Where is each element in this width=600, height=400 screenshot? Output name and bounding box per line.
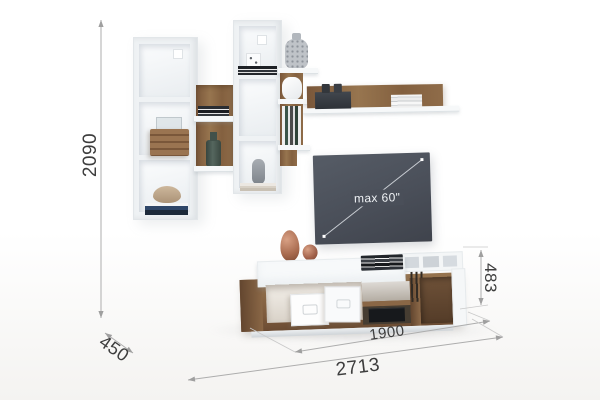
knob-decor	[322, 84, 330, 93]
knob-decor	[334, 84, 342, 93]
patterned-silver-vase	[285, 39, 308, 69]
tv-panel: max 60"	[313, 152, 432, 244]
stand-white-end-cap	[451, 268, 467, 326]
speaker-box-decor	[315, 92, 351, 110]
magazine-stack	[240, 183, 276, 191]
dimension-label-depth: 450	[95, 331, 133, 366]
tv-max-size-label: max 60"	[351, 189, 404, 206]
dimension-label-overall-height: 2090	[80, 133, 102, 177]
standing-books	[282, 106, 301, 145]
vase-neck	[292, 33, 301, 40]
stand-middle-compartment-upper	[362, 281, 411, 302]
book-stack-on-stand	[361, 254, 403, 270]
wall-shelf-connector	[196, 85, 233, 171]
white-book-stack	[391, 94, 422, 108]
cubby-slot	[423, 256, 439, 268]
box-label	[302, 304, 317, 315]
black-media-box	[369, 307, 405, 322]
white-storage-box	[324, 286, 360, 322]
cubby-slot	[403, 257, 419, 269]
dimension-label-stand-height: 483	[480, 263, 500, 293]
tv-stand	[237, 246, 472, 338]
basket-bowl	[153, 186, 181, 203]
white-storage-box	[290, 293, 329, 326]
box-label	[336, 299, 350, 308]
product-render-stage: max 60"	[0, 0, 600, 400]
shelf	[194, 166, 235, 172]
gray-vase	[252, 159, 265, 184]
white-pillow	[282, 77, 302, 100]
copper-vase-small	[302, 244, 318, 261]
book-stack	[145, 203, 188, 215]
shelf	[194, 116, 235, 122]
cabinet-center-cell-middle	[239, 79, 276, 136]
cabinet-latch	[257, 35, 267, 45]
wood-back-panel	[280, 150, 297, 166]
stand-right-compartment	[420, 277, 454, 324]
cabinet-latch	[173, 49, 183, 59]
cubby-slot	[443, 255, 457, 266]
book-stack	[198, 106, 229, 116]
glass-bottle	[206, 140, 221, 166]
wall-cabinet-center	[233, 20, 282, 194]
book-stack	[238, 66, 277, 75]
wooden-crate	[150, 129, 189, 156]
copper-vase-tall	[280, 230, 300, 262]
dimension-label-overall-width: 2713	[335, 354, 382, 381]
wall-cabinet-left	[133, 37, 198, 220]
glass-bottle-neck	[210, 132, 217, 141]
horizontal-wall-shelf	[303, 79, 464, 118]
